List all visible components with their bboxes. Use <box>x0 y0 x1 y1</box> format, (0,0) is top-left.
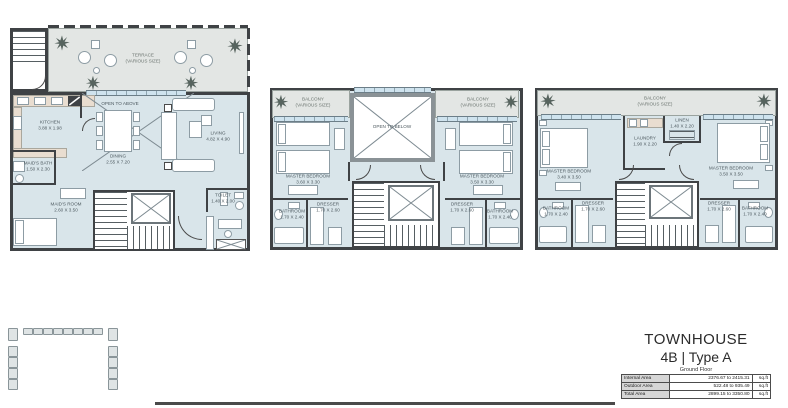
side-table <box>189 67 196 74</box>
room-dims: 3.40 X 3.50 <box>547 175 591 181</box>
master-left-label: MASTER BEDROOM 3.40 X 3.50 <box>547 169 591 182</box>
plant-icon <box>183 75 199 91</box>
wall <box>10 150 56 152</box>
room-dims: 1.90 X 2.20 <box>633 142 657 148</box>
area-unit: sq.ft <box>752 383 770 391</box>
project-title: TOWNHOUSE <box>620 331 772 348</box>
pillow <box>15 220 24 244</box>
wall <box>80 92 82 118</box>
room-dims: 3.50 X 3.30 <box>460 180 504 186</box>
bathtub <box>745 226 773 243</box>
wall <box>699 116 701 143</box>
area-table: Internal Area 2376.67 to 2415.31 sq.ft O… <box>621 374 771 399</box>
round-chair <box>78 51 91 64</box>
pillow <box>503 124 511 144</box>
nightstand <box>539 170 547 176</box>
area-value: 2376.67 to 2415.31 <box>669 375 752 383</box>
laundry-label: LAUNDRY 1.90 X 2.20 <box>633 136 657 149</box>
balcony-left-label: BALCONY (VARIOUS SIZE) <box>296 97 331 110</box>
key-plan-unit <box>33 328 43 335</box>
key-plan-unit <box>73 328 83 335</box>
pillow <box>278 152 286 172</box>
area-unit: sq.ft <box>752 375 770 383</box>
pillow <box>542 149 550 165</box>
balcony-label: BALCONY (VARIOUS SIZE) <box>638 96 673 109</box>
open-to-below-label: OPEN TO BELOW <box>373 124 411 130</box>
room-dims: 1.50 X 2.30 <box>24 167 53 173</box>
plant-icon <box>540 93 557 110</box>
cooktop <box>13 116 22 130</box>
desk <box>473 185 503 195</box>
desk <box>733 180 759 189</box>
key-plan-unit <box>108 346 118 357</box>
terrace-railing-top <box>48 25 248 28</box>
key-plan-unit <box>108 379 118 390</box>
wall <box>445 198 521 200</box>
master-left-label: MASTER BEDROOM 3.60 X 3.30 <box>286 174 330 187</box>
key-plan-unit <box>8 357 18 368</box>
desk <box>288 185 318 195</box>
master-right-label: MASTER BEDROOM 3.50 X 3.50 <box>709 166 753 179</box>
bench <box>705 225 719 243</box>
plan-first-floor: BALCONY (VARIOUS SIZE) BALCONY (VARIOUS … <box>268 85 527 252</box>
pillow <box>760 144 768 160</box>
square-table <box>91 40 100 49</box>
room-size: (VARIOUS SIZE) <box>126 59 161 65</box>
dryer <box>640 119 648 127</box>
dresser-right-label: DRESSER 1.70 X 2.60 <box>707 201 731 214</box>
room-size: (VARIOUS SIZE) <box>296 103 331 109</box>
stair-treads <box>13 31 45 65</box>
plant-icon <box>54 35 71 52</box>
tv-unit <box>239 112 244 154</box>
kitchen-appliance <box>34 97 46 105</box>
stair-treads <box>645 225 697 246</box>
dining-chair <box>133 126 140 136</box>
nightstand <box>765 165 773 171</box>
dining-chair <box>96 112 103 122</box>
wall <box>738 198 740 248</box>
room-dims: 3.60 X 3.30 <box>286 180 330 186</box>
wall <box>663 116 665 143</box>
area-label: Outdoor Area <box>622 383 670 391</box>
plant-icon <box>85 75 101 91</box>
wall <box>54 150 56 185</box>
square-table <box>187 40 196 49</box>
wall <box>623 116 625 170</box>
key-plan-unit <box>63 328 73 335</box>
bench <box>328 227 342 245</box>
stair-treads <box>354 183 384 246</box>
terrace-label: TERRACE (VARIOUS SIZE) <box>126 53 161 66</box>
stair-treads <box>95 192 127 249</box>
key-plan-unit <box>23 328 33 335</box>
key-plan-unit <box>8 379 18 390</box>
linen-shelves <box>669 130 695 140</box>
dresser-right-label: DRESSER 1.70 X 2.60 <box>450 202 474 215</box>
plant-icon <box>273 94 289 110</box>
dining-chair <box>133 140 140 150</box>
balcony-right-label: BALCONY (VARIOUS SIZE) <box>461 97 496 110</box>
table-row: Total Area 2899.15 to 3350.80 sq.ft <box>622 391 771 399</box>
wall <box>663 141 701 143</box>
maids-room-label: MAID'S ROOM 2.60 X 3.50 <box>51 202 82 215</box>
room-dims: 3.50 X 3.50 <box>709 172 753 178</box>
staircase <box>352 181 440 248</box>
wall <box>10 183 56 185</box>
round-chair <box>174 51 187 64</box>
area-value: 522.48 to 935.49 <box>669 383 752 391</box>
living-label: LIVING 4.82 X 4.90 <box>206 131 230 144</box>
wall <box>206 188 248 190</box>
stair-treads <box>617 183 645 246</box>
table-row: Outdoor Area 522.48 to 935.49 sq.ft <box>622 383 771 391</box>
dresser-left-label: DRESSER 1.70 X 2.60 <box>316 202 340 215</box>
staircase <box>93 190 175 251</box>
terrace-railing-right <box>247 28 250 92</box>
bathtub <box>274 227 304 244</box>
dining-chair <box>133 112 140 122</box>
pillow <box>542 131 550 147</box>
island-counter <box>161 112 177 160</box>
area-value: 2899.15 to 3350.80 <box>669 391 752 399</box>
room-dims: 4.82 X 4.90 <box>206 137 230 143</box>
dresser-left-label: DRESSER 1.70 X 2.60 <box>581 201 605 214</box>
kitchen-label: KITCHEN 3.88 X 1.98 <box>38 120 62 133</box>
window-strip <box>541 114 621 120</box>
room-dims: 1.70 X 2.60 <box>707 207 731 213</box>
kitchen-appliance <box>51 97 63 105</box>
plant-icon <box>503 94 519 110</box>
desk <box>218 219 242 229</box>
sofa <box>172 159 215 172</box>
plant-icon <box>227 38 244 55</box>
nightstand <box>539 120 547 126</box>
column <box>164 162 172 170</box>
room-size: (VARIOUS SIZE) <box>461 103 496 109</box>
key-plan-unit <box>53 328 63 335</box>
column <box>164 104 172 112</box>
bench <box>334 128 345 150</box>
coffee-table <box>201 115 212 126</box>
room-dims: 2.55 X 7.20 <box>106 160 130 166</box>
stair-treads <box>384 225 438 246</box>
room-dims: 3.88 X 1.98 <box>38 126 62 132</box>
key-plan-unit <box>8 368 18 379</box>
key-plan-unit <box>108 328 118 341</box>
washer <box>629 119 637 127</box>
floor-name: Ground Floor <box>620 367 772 373</box>
dining-chair <box>96 140 103 150</box>
wall <box>348 162 350 181</box>
bathtub <box>539 226 567 243</box>
elevator-core <box>131 193 171 224</box>
key-plan-unit <box>108 368 118 379</box>
wall <box>306 198 308 248</box>
room-name: OPEN TO BELOW <box>373 124 411 130</box>
wall <box>206 190 208 212</box>
bathroom-right-label: BATHROOM 1.70 X 2.40 <box>742 206 768 219</box>
area-unit: sq.ft <box>752 391 770 399</box>
plan-ground-floor: TERRACE (VARIOUS SIZE) KITCHEN <box>8 20 252 253</box>
area-label: Total Area <box>622 391 670 399</box>
dining-chair <box>96 126 103 136</box>
storage-hatch <box>216 239 246 250</box>
room-name: OPEN TO ABOVE <box>101 101 138 107</box>
key-plan-unit <box>93 328 103 335</box>
pillow <box>278 124 286 144</box>
room-dims: 1.40 X 2.20 <box>670 124 694 130</box>
toilet-fixture <box>15 174 24 183</box>
pillow <box>760 126 768 142</box>
unit-type-subtitle: 4B | Type A <box>620 349 772 365</box>
linen-label: LINEN 1.40 X 2.20 <box>670 118 694 131</box>
wall <box>272 198 348 200</box>
master-right-label: MASTER BEDROOM 3.50 X 3.30 <box>460 174 504 187</box>
room-dims: 1.70 X 2.40 <box>487 215 513 221</box>
open-to-above-label: OPEN TO ABOVE <box>101 101 138 107</box>
side-table <box>93 67 100 74</box>
scale-bar <box>155 402 615 405</box>
room-dims: 1.70 X 2.40 <box>742 212 768 218</box>
plan-second-floor: BALCONY (VARIOUS SIZE) MASTER BEDROOM 3.… <box>533 85 780 252</box>
wall <box>485 198 487 248</box>
room-dims: 1.70 X 2.60 <box>316 208 340 214</box>
toilet-fixture <box>235 201 244 210</box>
skylight-glazing <box>354 87 431 93</box>
sofa <box>172 98 215 111</box>
floor-plan-sheet: TERRACE (VARIOUS SIZE) KITCHEN <box>0 0 788 408</box>
key-plan-unit <box>108 357 118 368</box>
stair-treads <box>127 226 173 249</box>
room-dims: 2.60 X 3.50 <box>51 208 82 214</box>
area-label: Internal Area <box>622 375 670 383</box>
room-dims: 1.70 X 2.60 <box>450 208 474 214</box>
wall <box>571 198 573 248</box>
table-row: Internal Area 2376.67 to 2415.31 sq.ft <box>622 375 771 383</box>
title-block: TOWNHOUSE 4B | Type A Ground Floor Inter… <box>620 331 772 399</box>
bench <box>445 128 456 150</box>
key-plan-unit <box>43 328 53 335</box>
desk-chair <box>224 230 232 238</box>
elevator-core <box>649 185 693 219</box>
room-dims: 1.40 X 2.00 <box>211 199 235 205</box>
key-plan-unit <box>83 328 93 335</box>
round-chair <box>200 54 213 67</box>
dining-table <box>104 110 132 152</box>
kitchen-appliance <box>17 97 29 105</box>
bathtub <box>489 227 519 244</box>
room-dims: 1.70 X 2.40 <box>543 212 569 218</box>
wardrobe <box>60 188 86 199</box>
elevator-core <box>388 185 434 221</box>
staircase <box>615 181 699 248</box>
bathroom-left-label: BATHROOM 1.70 X 2.40 <box>543 206 569 219</box>
dining-label: DINING 2.55 X 7.20 <box>106 154 130 167</box>
round-chair <box>104 54 117 67</box>
pillow <box>503 152 511 172</box>
maids-bath-label: MAID'S BATH 1.50 X 2.30 <box>24 161 53 174</box>
sink <box>234 192 244 199</box>
bathroom-left-label: BATHROOM 1.70 X 2.40 <box>279 209 305 222</box>
key-plan-unit <box>8 328 18 341</box>
plant-icon <box>756 93 773 110</box>
toilet-label: TOILET 1.40 X 2.00 <box>211 193 235 206</box>
desk <box>555 182 581 191</box>
room-size: (VARIOUS SIZE) <box>638 102 673 108</box>
wall <box>443 162 445 181</box>
bench <box>592 225 606 243</box>
bench <box>451 227 465 245</box>
key-plan <box>6 320 156 405</box>
window-strip <box>703 114 773 120</box>
bathroom-right-label: BATHROOM 1.70 X 2.40 <box>487 209 513 222</box>
radiator <box>206 216 214 250</box>
room-dims: 1.70 X 2.40 <box>279 215 305 221</box>
room-dims: 1.70 X 2.60 <box>581 207 605 213</box>
key-plan-unit <box>8 346 18 357</box>
